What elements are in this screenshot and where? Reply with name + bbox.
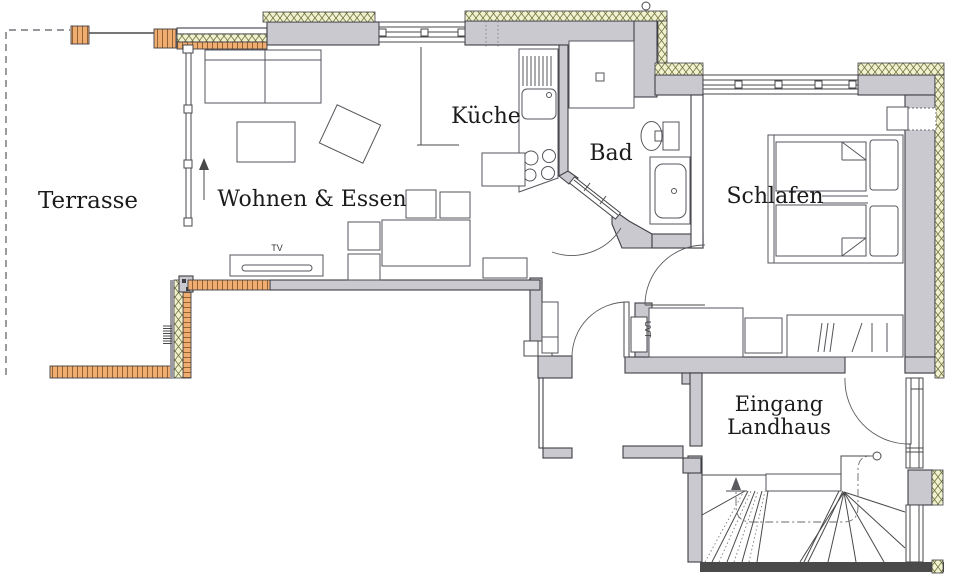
kitchen-block — [482, 153, 525, 186]
apartment-entrance-door — [572, 302, 629, 357]
sliding-door-node — [184, 105, 192, 113]
sliding-door-node — [184, 160, 192, 168]
tv-sideboard — [230, 255, 323, 276]
canopy-insulation — [177, 34, 267, 42]
wall-right-of-bedroom-window — [858, 75, 935, 95]
pergola-post — [154, 29, 176, 48]
sliding-door-panel — [186, 168, 191, 218]
hall-items — [542, 302, 647, 353]
nightstand — [887, 107, 908, 130]
sliding-door-node — [184, 218, 192, 226]
sliding-door-panel — [186, 113, 191, 160]
newel-post — [873, 452, 881, 460]
sliding-door-bracket — [183, 45, 193, 53]
entrance-label-line2: Landhaus — [727, 415, 831, 439]
bath-corner-block — [634, 21, 657, 97]
sliding-door-panel — [186, 53, 191, 105]
pillow — [870, 206, 898, 256]
terrace-label: Terrasse — [38, 188, 138, 214]
partitions — [691, 95, 703, 248]
wall-niche — [908, 108, 936, 130]
bedroom-window — [703, 75, 858, 94]
stair-railing — [841, 456, 872, 491]
terrace-deck-edge — [50, 366, 173, 378]
kitchen-label: Küche — [451, 104, 521, 129]
terrace-deck-column — [183, 280, 191, 378]
sideboard — [649, 308, 743, 357]
bedroom-door — [645, 245, 705, 305]
shower — [569, 41, 634, 108]
stair-south-wall — [700, 562, 944, 572]
pergola-post — [71, 26, 89, 44]
slide-direction-arrow — [199, 158, 209, 200]
toilet — [641, 122, 679, 151]
track-mark — [182, 279, 186, 283]
roof-vent-circle — [642, 2, 650, 10]
south-wall-right-stub — [905, 357, 935, 373]
kitchen-zone-line — [417, 47, 459, 145]
pillow — [870, 140, 898, 190]
staircase — [702, 452, 905, 562]
living-south-wall — [270, 280, 540, 290]
wardrobe — [787, 315, 903, 357]
bath-bedroom-partition — [691, 95, 703, 248]
bath-door — [552, 177, 621, 255]
outside-step-wall-b — [623, 446, 683, 458]
stair-right-wall-block — [908, 470, 932, 505]
bath-label: Bad — [589, 141, 632, 166]
bathtub — [650, 157, 690, 224]
top-wall-living — [267, 22, 379, 45]
outside-edge-line — [539, 378, 543, 448]
deck-band-south — [188, 280, 270, 290]
chair — [348, 222, 380, 250]
column-insulation — [174, 280, 183, 378]
stair-west-wall-upper — [690, 373, 702, 446]
uvt-label: UVT — [643, 321, 653, 338]
dresser — [745, 318, 782, 353]
kitchen-bath-wall — [559, 45, 568, 176]
canopy-strip — [177, 28, 267, 34]
stair-steps-left — [702, 491, 768, 562]
room-labels: Terrasse Wohnen & Essen Küche Bad Schlaf… — [38, 104, 831, 439]
bedroom-furniture — [649, 107, 908, 357]
chair — [406, 190, 436, 218]
stair-window-lower — [906, 505, 923, 562]
south-wall — [625, 357, 845, 373]
wall-left-of-bedroom-window — [655, 75, 703, 95]
stair-landing — [766, 474, 841, 491]
armchair — [319, 105, 380, 163]
walking-line-arrow — [731, 477, 741, 490]
right-exterior-wall — [905, 95, 935, 373]
tv-label: TV — [271, 243, 283, 253]
outside-step-corner — [683, 458, 701, 473]
stair-stringer — [804, 491, 843, 562]
chair — [348, 254, 380, 280]
chair — [440, 192, 470, 218]
house-entrance-door — [845, 378, 911, 444]
dining-table — [382, 220, 470, 266]
hall-sw-corner — [538, 356, 572, 378]
sofa — [205, 50, 321, 103]
living-label: Wohnen & Essen — [217, 187, 406, 212]
radiator — [542, 302, 558, 353]
coffee-table — [237, 122, 295, 162]
living-window — [379, 22, 465, 42]
bedroom-label: Schlafen — [726, 184, 823, 209]
stair-steps-right — [800, 491, 905, 562]
entrance-label-line1: Eingang — [735, 392, 824, 416]
floor-plan-drawing: Terrasse Wohnen & Essen Küche Bad Schlaf… — [0, 0, 960, 579]
floor-plan: Terrasse Wohnen & Essen Küche Bad Schlaf… — [0, 0, 960, 579]
outside-step-wall-a — [543, 448, 572, 458]
bench — [483, 258, 527, 278]
living-furniture — [205, 50, 527, 280]
